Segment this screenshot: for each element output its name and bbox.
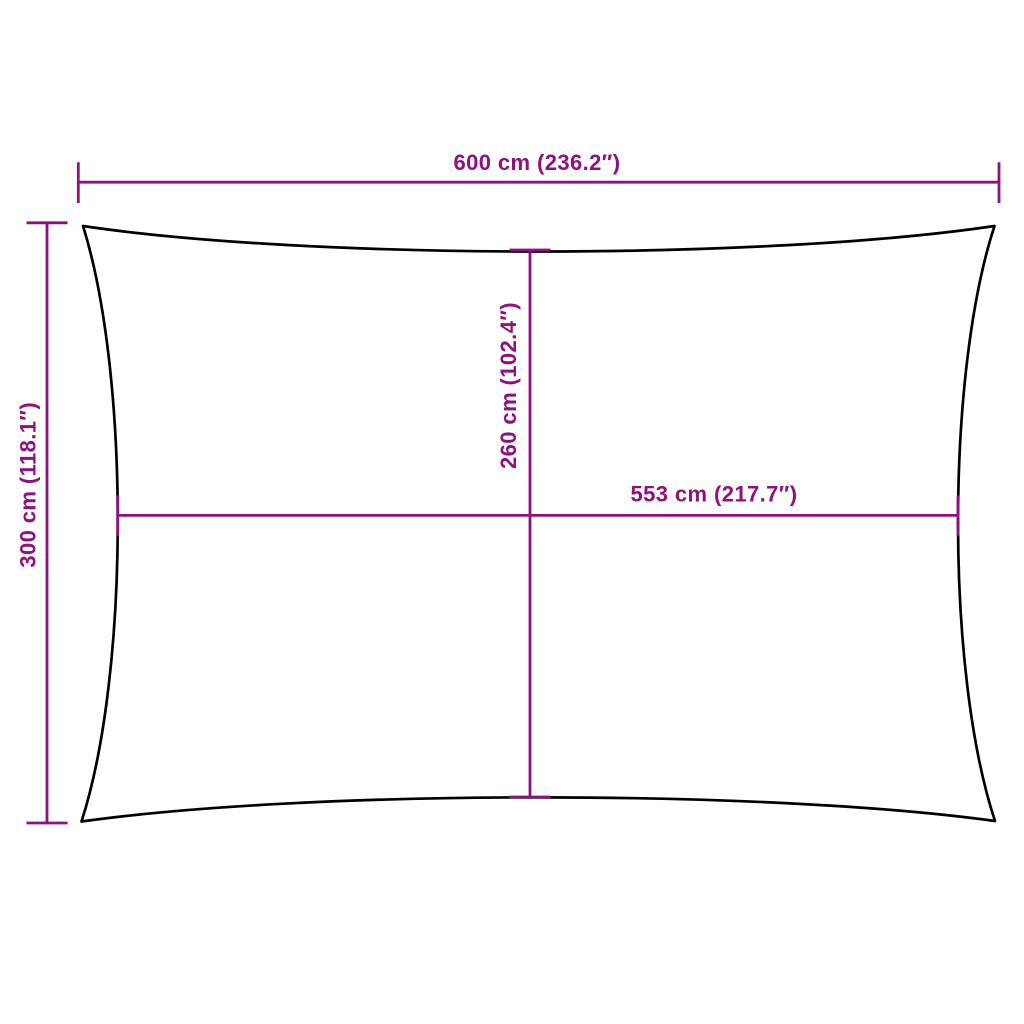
svg-text:553 cm (217.7″): 553 cm (217.7″) <box>631 482 798 507</box>
svg-text:260 cm (102.4″): 260 cm (102.4″) <box>496 302 521 469</box>
svg-text:300 cm (118.1″): 300 cm (118.1″) <box>16 402 41 568</box>
svg-text:600 cm (236.2″): 600 cm (236.2″) <box>454 150 621 175</box>
